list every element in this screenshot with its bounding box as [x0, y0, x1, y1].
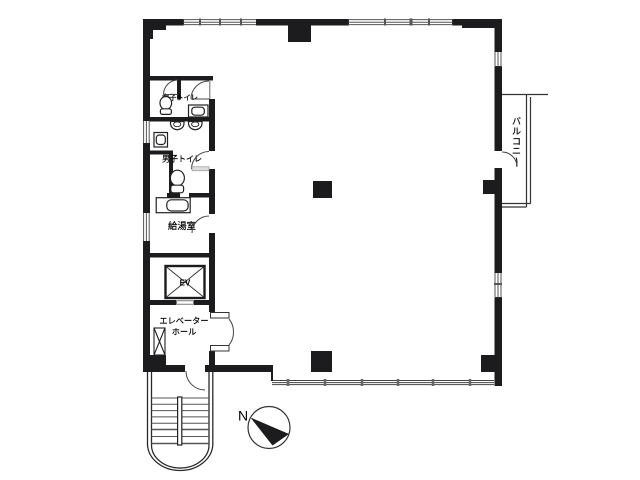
svg-text:ホール: ホール: [172, 328, 197, 337]
svg-text:N: N: [238, 408, 248, 424]
svg-text:ニ: ニ: [512, 146, 521, 156]
svg-text:エレベーター: エレベーター: [159, 317, 208, 326]
svg-text:EV: EV: [180, 279, 191, 288]
svg-text:コ: コ: [512, 137, 521, 147]
svg-text:男子トイレ: 男子トイレ: [162, 155, 202, 164]
svg-text:バ: バ: [512, 117, 521, 127]
svg-text:給湯室: 給湯室: [168, 220, 196, 231]
svg-text:ル: ル: [512, 127, 521, 137]
